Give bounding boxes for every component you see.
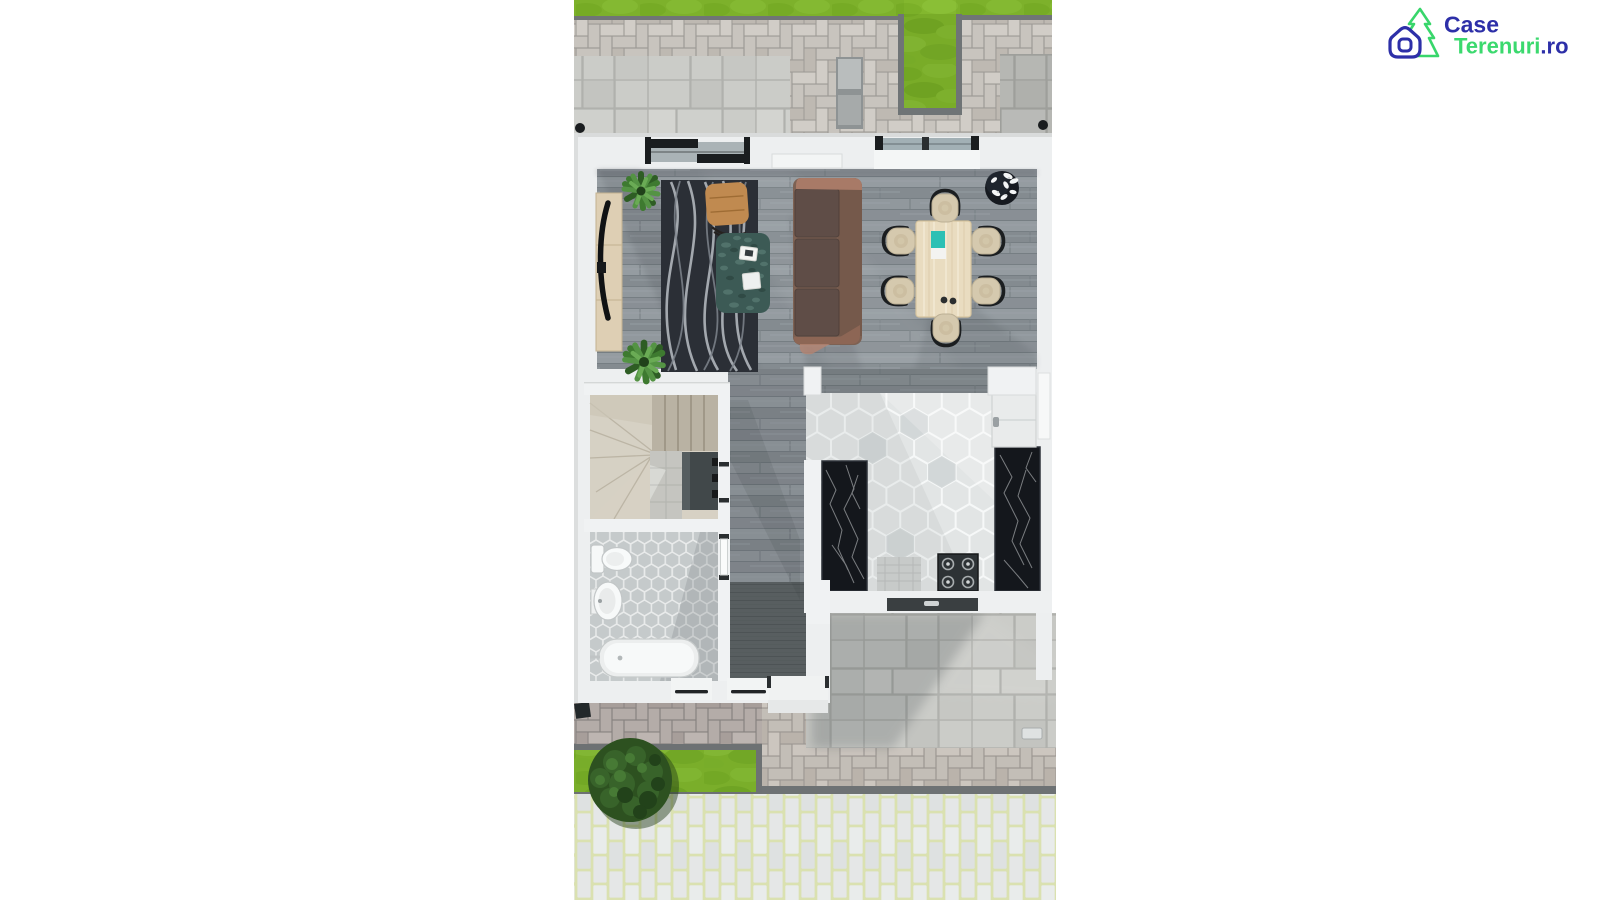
svg-text:Terenuri.ro: Terenuri.ro xyxy=(1454,34,1569,59)
